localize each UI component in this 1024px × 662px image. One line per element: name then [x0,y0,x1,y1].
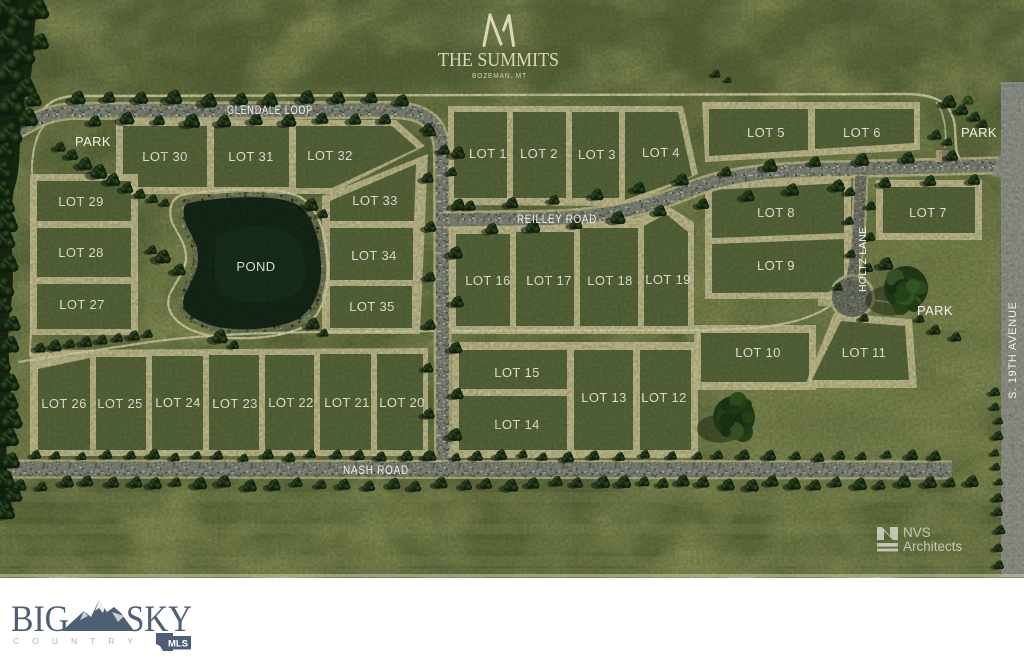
svg-text:NASH ROAD: NASH ROAD [343,463,409,477]
svg-text:PARK: PARK [75,134,111,149]
svg-text:COUNTRY: COUNTRY [13,637,146,646]
svg-text:BOZEMAN, MT: BOZEMAN, MT [472,71,527,80]
svg-text:HOLTZ LANE: HOLTZ LANE [857,226,869,292]
svg-text:NVS: NVS [903,525,931,540]
svg-text:REILLEY ROAD: REILLEY ROAD [517,212,597,226]
svg-text:THE SUMMITS: THE SUMMITS [438,49,559,71]
svg-text:MLS: MLS [168,639,188,650]
svg-text:PARK: PARK [961,125,997,140]
svg-text:S. 19TH AVENUE: S. 19TH AVENUE [1007,301,1019,399]
svg-text:BIG: BIG [11,599,69,640]
svg-text:Architects: Architects [903,539,963,554]
svg-text:GLENDALE LOOP: GLENDALE LOOP [227,105,313,117]
svg-text:PARK: PARK [917,303,953,318]
